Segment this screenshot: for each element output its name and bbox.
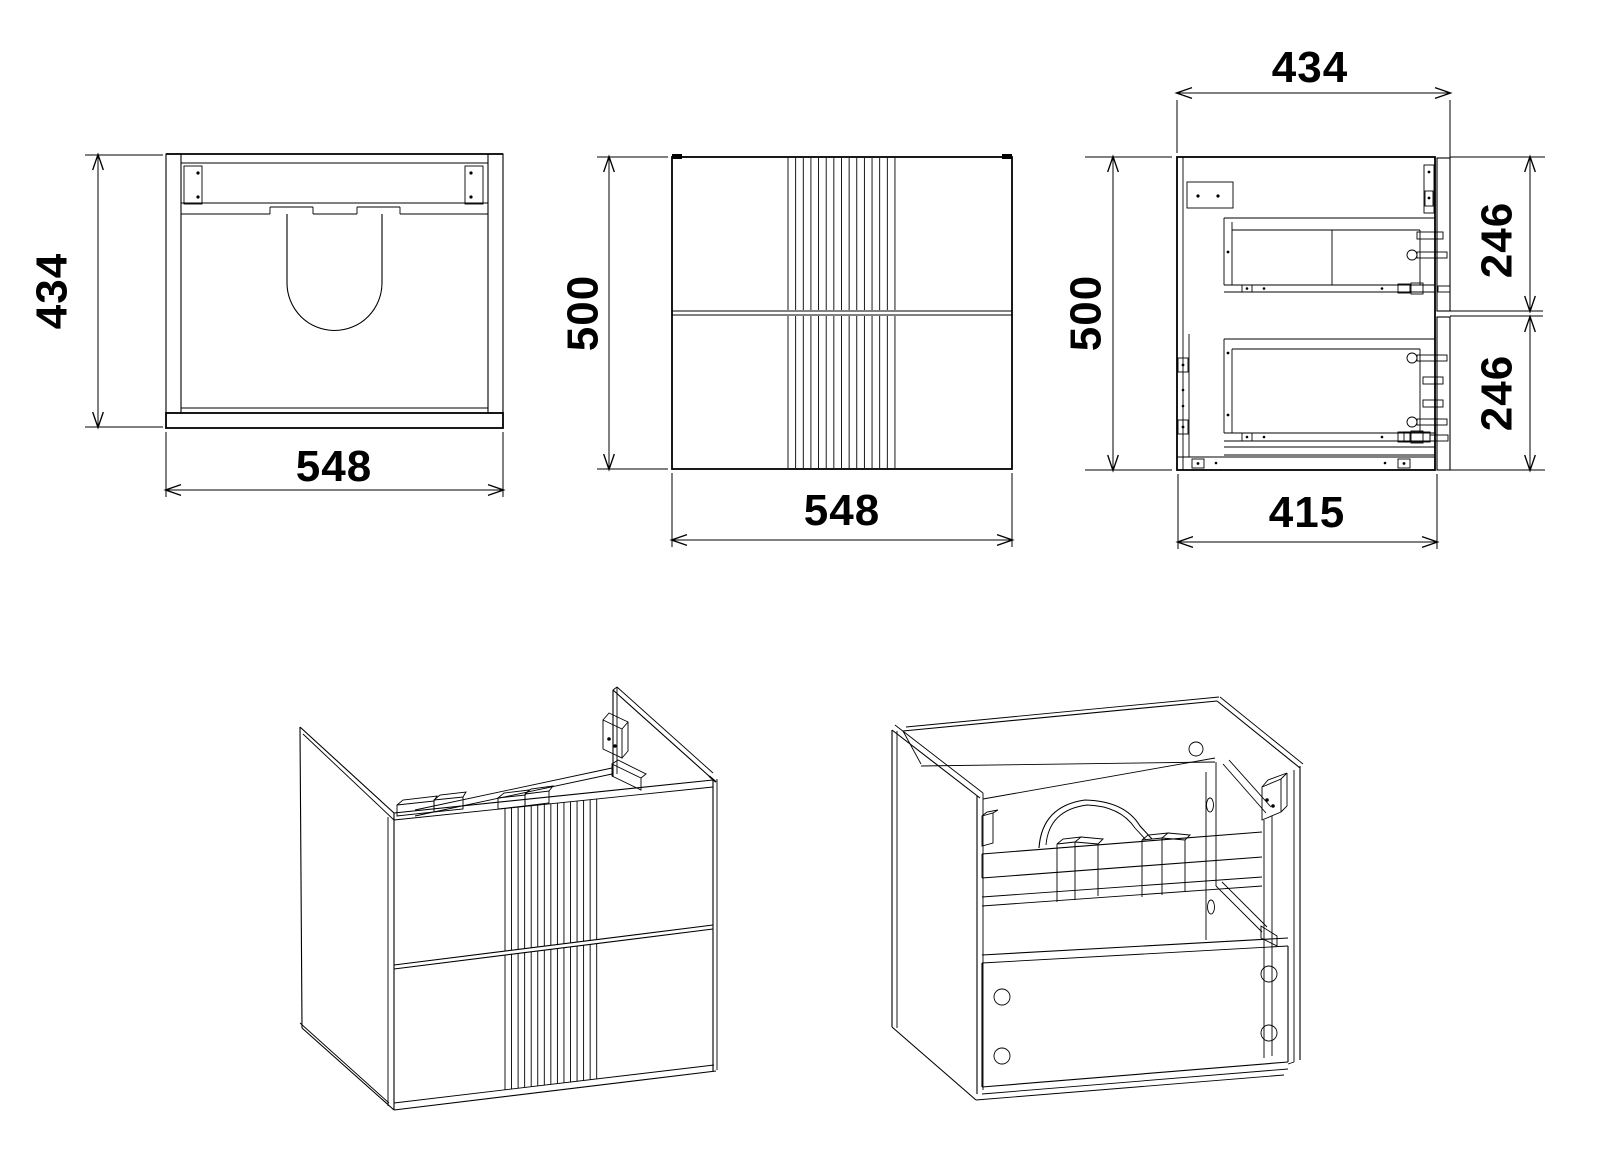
- side-dim-depth-body: 415: [1178, 474, 1437, 549]
- plan-back-rail: [181, 163, 488, 204]
- front-fluted-panel: [788, 158, 895, 468]
- front-right-corner-tick: [1002, 154, 1012, 159]
- side-dim-drawer-fronts: 246 246: [1473, 157, 1531, 470]
- plan-view: 434 548: [28, 154, 504, 497]
- side-lower-drawer: [1178, 334, 1448, 457]
- front-left-corner-tick: [672, 154, 682, 159]
- side-view: 434 500 246 246 415: [1062, 43, 1546, 549]
- plan-sink-cutout: [181, 207, 488, 331]
- plan-depth-label: 434: [28, 253, 77, 329]
- iso-back-lower-drawer-front: [976, 938, 1288, 1100]
- side-bottom-rail: [1177, 457, 1435, 468]
- iso-front-view: [300, 687, 717, 1110]
- iso-front-left-panel: [300, 727, 394, 1110]
- side-depth-overall-label: 434: [1272, 43, 1348, 92]
- iso-back-left-panel: [892, 725, 983, 1100]
- technical-drawing: 434 548 500 548: [0, 0, 1600, 1165]
- side-height-label: 500: [1062, 275, 1111, 351]
- drawing-sheet: 434 548 500 548: [0, 0, 1600, 1165]
- side-upper-drawer: [1224, 218, 1450, 294]
- side-wall-bracket: [1187, 165, 1434, 213]
- iso-front-fluted-panel: [505, 799, 597, 1090]
- side-dim-height: 500: [1062, 157, 1173, 470]
- front-dim-width: 548: [672, 473, 1012, 547]
- front-drawer-split: [672, 311, 1012, 315]
- side-dim-depth-overall: 434: [1177, 43, 1450, 158]
- plan-cabinet-outline: [166, 154, 503, 428]
- iso-back-view: [892, 697, 1303, 1100]
- front-height-label: 500: [559, 275, 608, 351]
- iso-back-top-rail: [903, 697, 1219, 799]
- side-depth-body-label: 415: [1269, 488, 1345, 537]
- plan-dim-width: 548: [166, 432, 503, 497]
- plan-width-label: 548: [296, 442, 372, 491]
- iso-front-wall-bracket: [603, 713, 628, 758]
- front-view: 500 548: [559, 154, 1013, 547]
- front-dim-height: 500: [559, 157, 669, 469]
- side-outline: [1177, 157, 1435, 470]
- iso-back-drawer-slides: [1216, 760, 1277, 1058]
- front-width-label: 548: [804, 486, 880, 535]
- iso-back-mounting-holes: [994, 966, 1277, 1064]
- iso-front-drawer-fronts: [394, 779, 717, 1110]
- side-drawer-upper-label: 246: [1473, 202, 1522, 278]
- plan-dim-depth: 434: [28, 155, 164, 427]
- side-drawer-lower-label: 246: [1473, 355, 1522, 431]
